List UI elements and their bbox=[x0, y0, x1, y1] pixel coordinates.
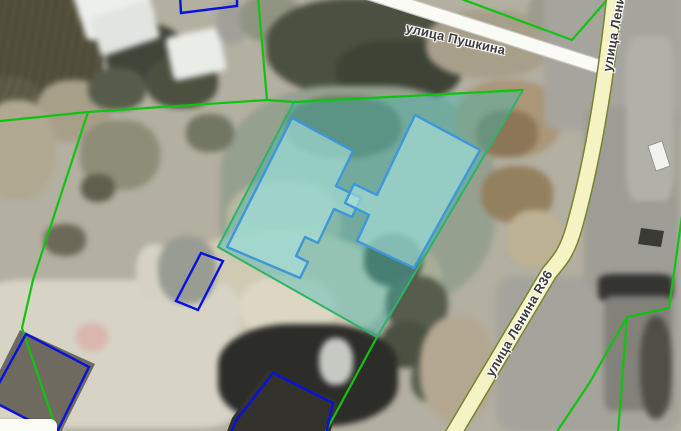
vector-overlay bbox=[0, 0, 681, 431]
parked-car-dark bbox=[638, 228, 664, 247]
cadastral-boundary-line[interactable] bbox=[258, 0, 267, 100]
building-outline-shed[interactable] bbox=[176, 253, 223, 310]
attribution-box bbox=[0, 419, 57, 431]
roof-south-building bbox=[226, 370, 338, 431]
cadastral-boundary-line[interactable] bbox=[325, 337, 377, 431]
cadastral-boundary-line[interactable] bbox=[556, 317, 627, 431]
building-outline-north[interactable] bbox=[180, 0, 237, 13]
map-canvas[interactable]: улица Пушкина улица Ленина улица Ленина … bbox=[0, 0, 681, 431]
cadastral-boundary-line[interactable] bbox=[0, 100, 294, 121]
parked-car-white bbox=[648, 141, 670, 171]
cadastral-boundary-line[interactable] bbox=[618, 216, 681, 431]
